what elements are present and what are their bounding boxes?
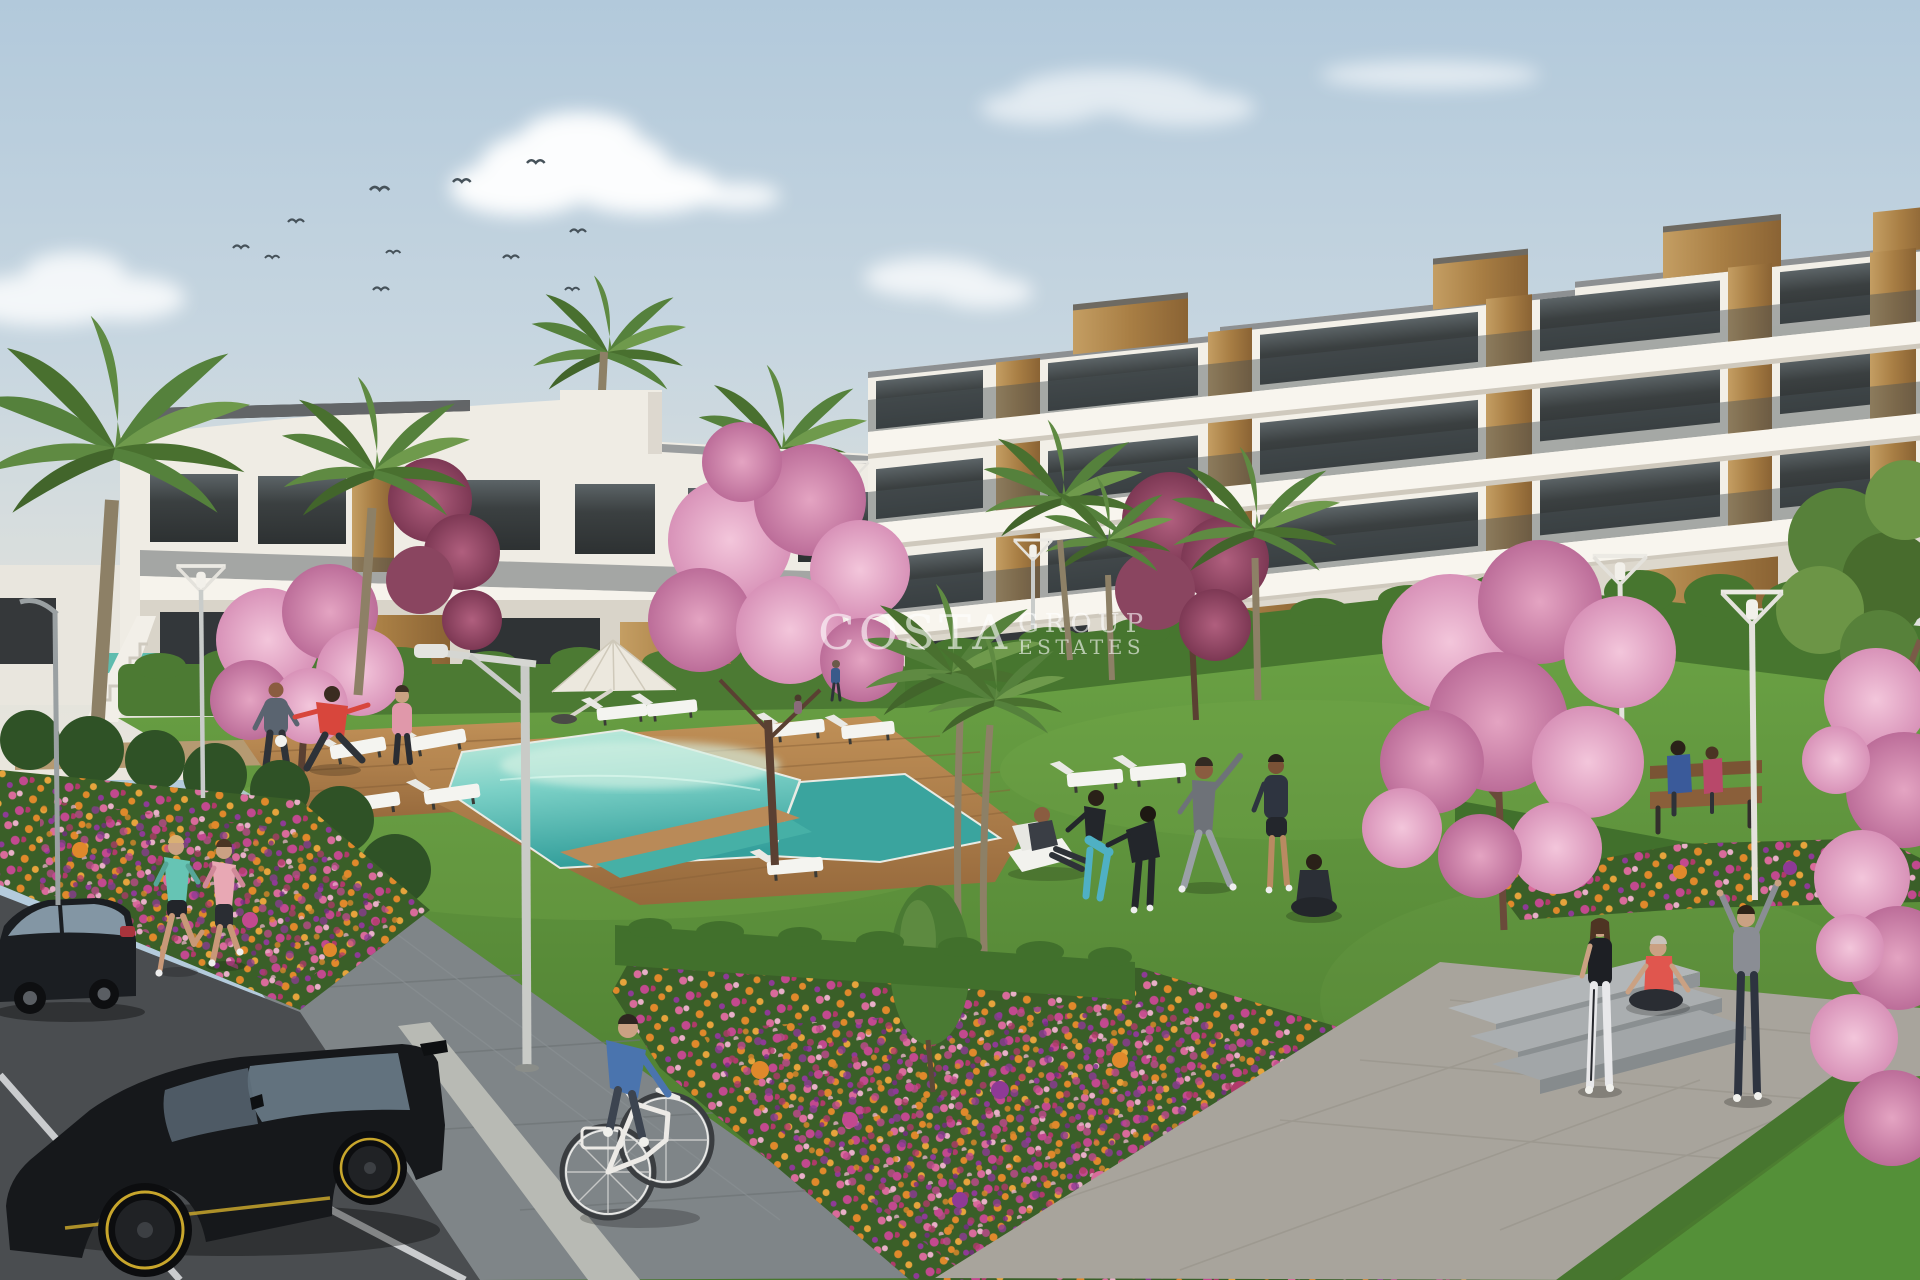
architectural-render: COSTA GROUP ESTATES — [0, 0, 1920, 1280]
scene-canvas — [0, 0, 1920, 1280]
tail-light — [120, 926, 135, 937]
